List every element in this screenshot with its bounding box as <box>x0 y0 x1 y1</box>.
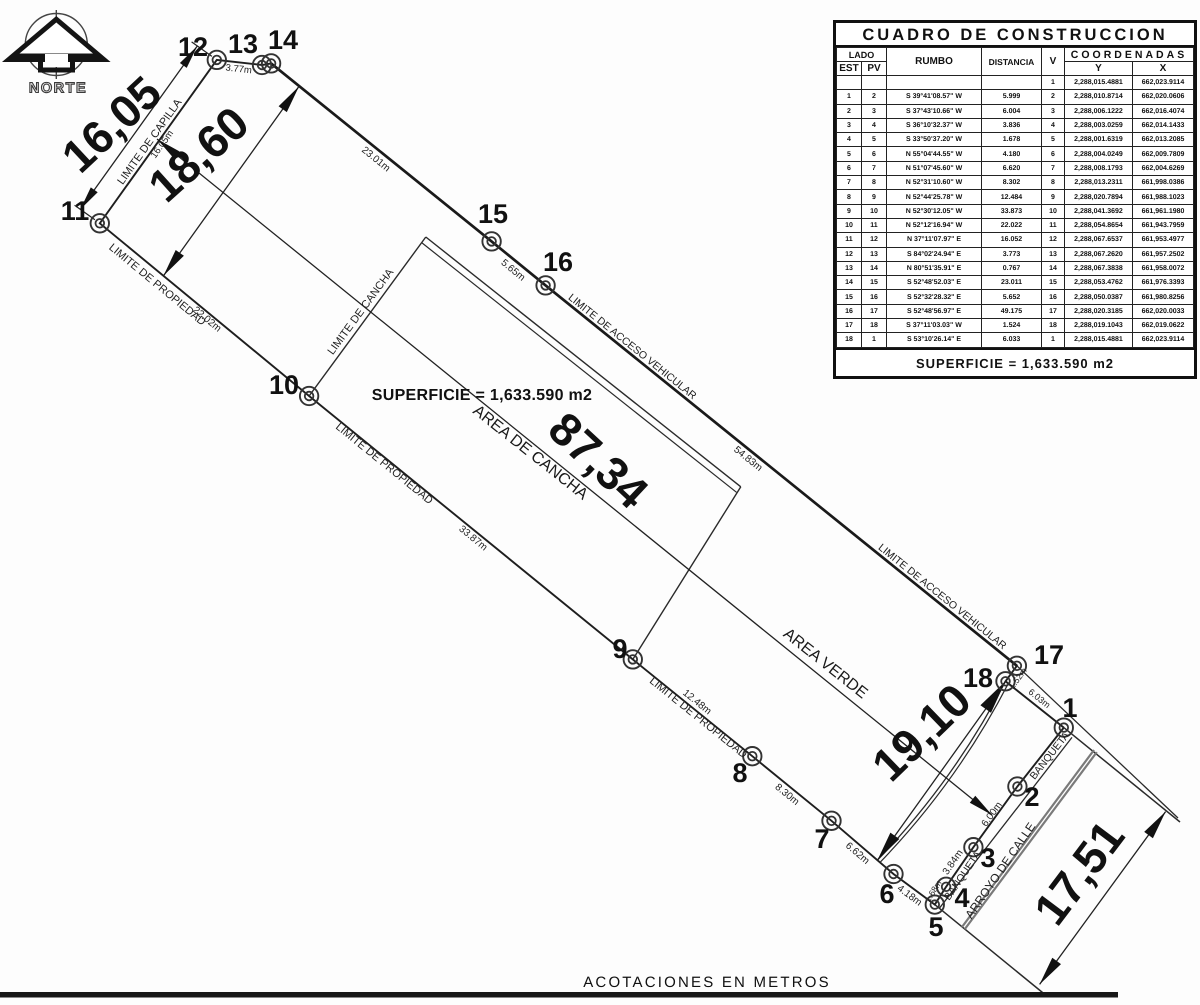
svg-text:13: 13 <box>228 29 258 59</box>
svg-text:2: 2 <box>1024 782 1039 812</box>
svg-text:SUPERFICIE = 1,633.590 m2: SUPERFICIE = 1,633.590 m2 <box>372 387 593 404</box>
svg-text:18: 18 <box>963 663 993 693</box>
svg-text:7: 7 <box>814 824 829 854</box>
svg-text:14: 14 <box>268 25 298 55</box>
svg-text:17: 17 <box>1034 640 1064 670</box>
svg-text:9: 9 <box>612 634 627 664</box>
svg-text:5: 5 <box>928 912 943 942</box>
svg-text:8: 8 <box>732 758 747 788</box>
svg-text:16: 16 <box>543 247 573 277</box>
svg-text:ACOTACIONES EN METROS: ACOTACIONES EN METROS <box>583 974 831 991</box>
svg-text:12: 12 <box>178 32 208 62</box>
svg-text:1: 1 <box>1062 693 1077 723</box>
svg-text:15: 15 <box>478 199 508 229</box>
svg-text:NORTE: NORTE <box>29 80 87 96</box>
svg-text:10: 10 <box>269 370 299 400</box>
svg-text:6: 6 <box>879 879 894 909</box>
svg-text:11: 11 <box>61 196 90 226</box>
